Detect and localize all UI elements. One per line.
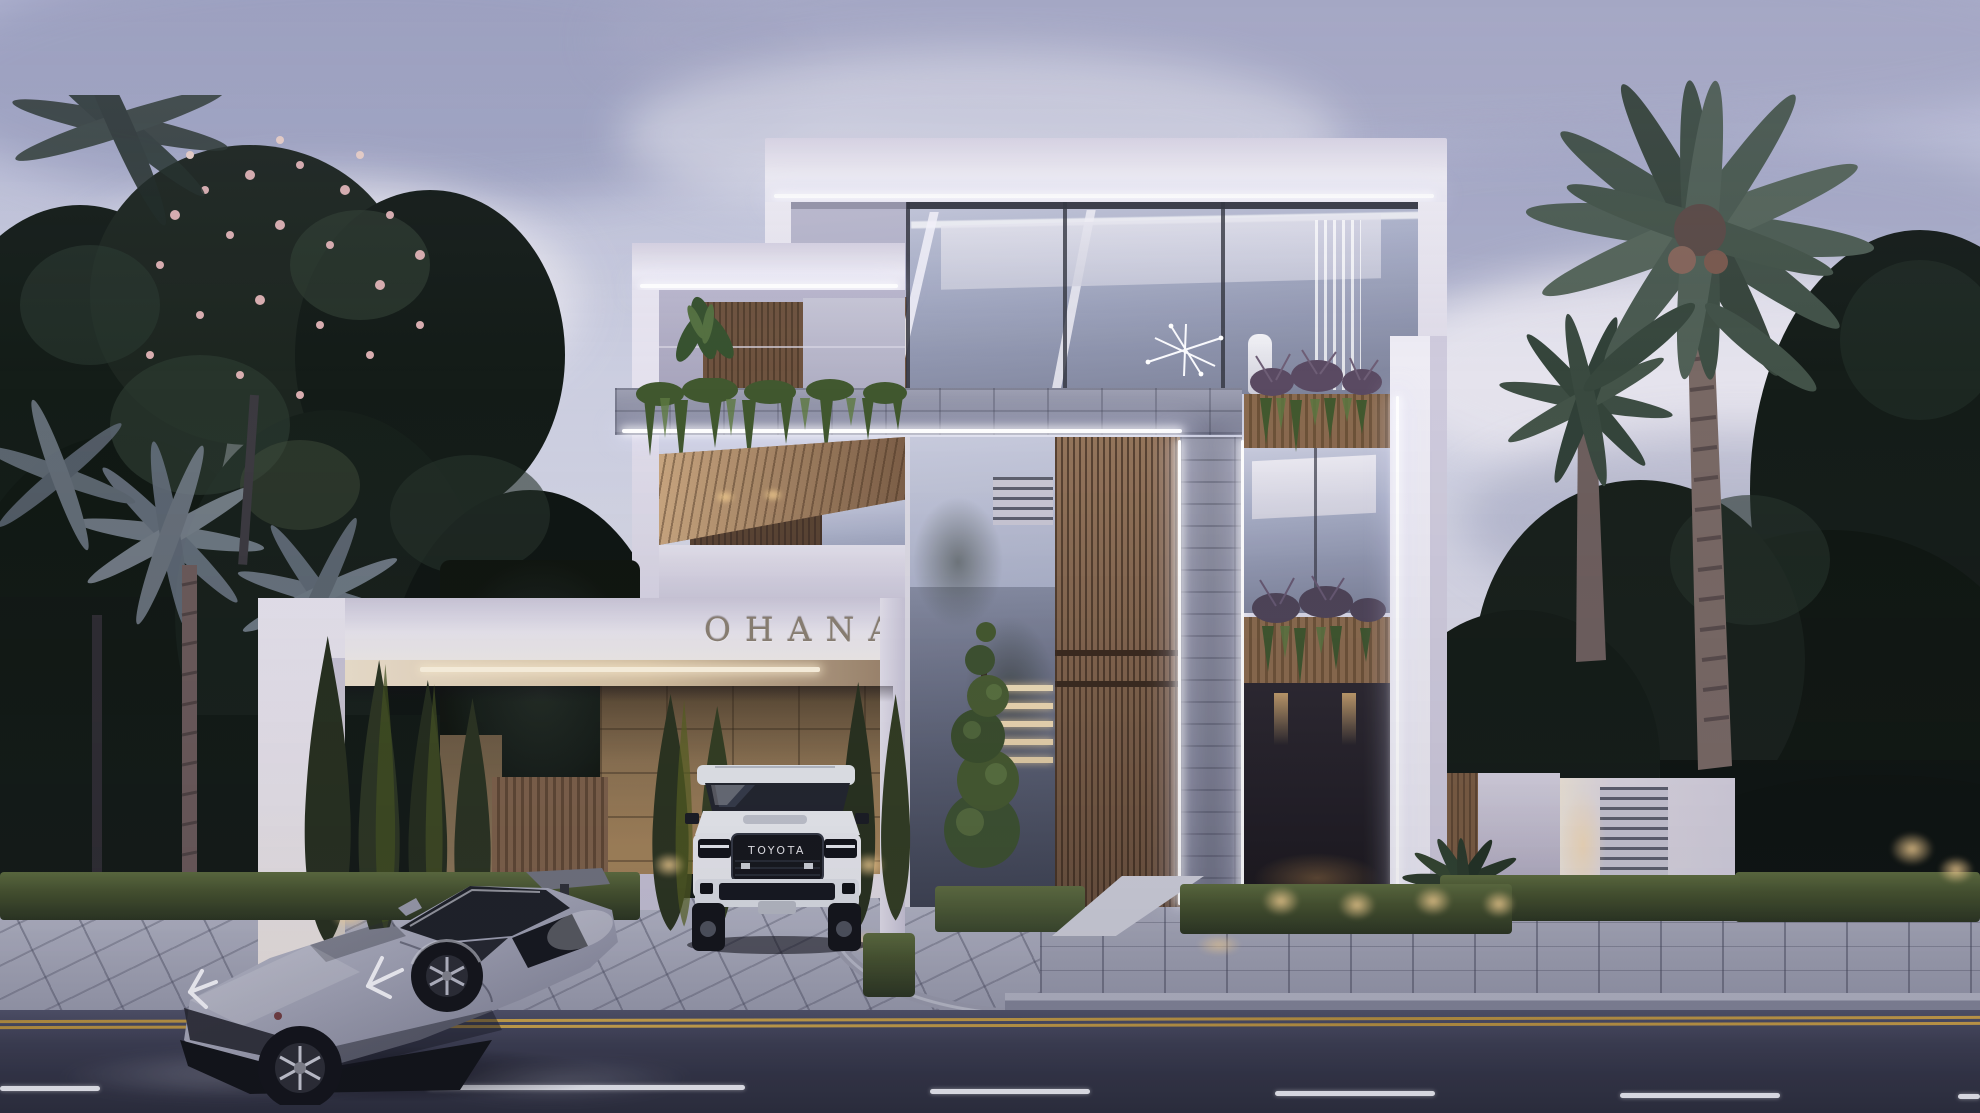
twilight-villa-scene: OHANA: [0, 0, 1980, 1113]
left-balcony-glass: [803, 298, 905, 390]
supercar-crest: [274, 1012, 282, 1020]
stone-pier: [1180, 437, 1242, 907]
road-dash-4: [1275, 1091, 1435, 1096]
soffit-downlight-2: [762, 488, 784, 502]
planter-upper-plants: [1242, 348, 1392, 458]
vent-louver-white: [993, 477, 1053, 525]
right-terrace-interior: [1244, 683, 1390, 907]
hedge-uplight-3: [1414, 886, 1452, 916]
left-wing-slab: [632, 243, 905, 290]
sputnik-chandelier: [1143, 320, 1229, 380]
balcony-plant-left: [664, 288, 742, 390]
tower-groove-2: [1055, 681, 1180, 687]
hedge-uplight-4: [1482, 890, 1516, 918]
entrance-wood-tower: [1055, 437, 1180, 907]
grass-patch-center: [935, 886, 1085, 932]
soffit-downlight-1: [714, 490, 736, 504]
ohana-sign: OHANA: [700, 608, 910, 652]
tower-groove-1: [1055, 650, 1180, 656]
tree-uplight-right-1: [1890, 832, 1934, 866]
terrace-wall-washer-2: [1342, 693, 1356, 745]
toyota-badge: TOYOTA: [747, 844, 806, 857]
spiral-topiary: [930, 608, 1040, 878]
terrace-wall-washer-1: [1274, 693, 1288, 745]
tree-uplight-right-2: [1938, 856, 1974, 884]
road-dash-5: [1620, 1093, 1780, 1098]
parapet-2f: [659, 545, 905, 601]
led-strip-top-fascia: [774, 194, 1434, 198]
hedge-uplight-2: [1338, 890, 1376, 920]
hedge-cube-front: [863, 933, 915, 997]
upper-mullion-1: [906, 202, 910, 394]
planter-lower-plants: [1242, 572, 1392, 690]
supercar-mirror: [398, 898, 422, 916]
road-dash-3: [930, 1089, 1090, 1094]
wall-uplight-1: [652, 852, 686, 878]
pavement-light-2: [1196, 934, 1242, 956]
upper-mullion-2: [1063, 202, 1067, 394]
supercar-rear-wheel: [411, 940, 483, 1012]
supercar: [160, 850, 630, 1105]
hedge-uplight-1: [1262, 886, 1300, 916]
ohana-sign-text: OHANA: [704, 610, 906, 649]
toyota-suv: TOYOTA: [685, 755, 875, 955]
led-strip-pier-left: [1178, 440, 1181, 905]
road-dash-6: [1958, 1094, 1980, 1099]
